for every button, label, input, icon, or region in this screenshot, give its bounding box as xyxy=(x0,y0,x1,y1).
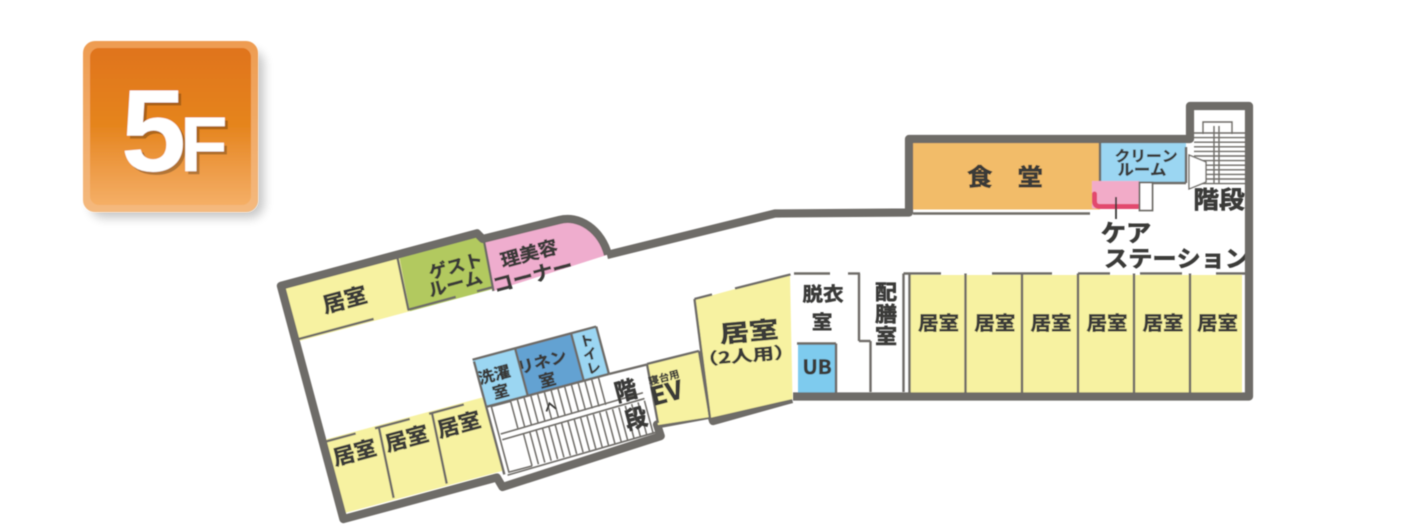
svg-text:5: 5 xyxy=(121,65,186,196)
svg-text:F: F xyxy=(180,100,228,188)
